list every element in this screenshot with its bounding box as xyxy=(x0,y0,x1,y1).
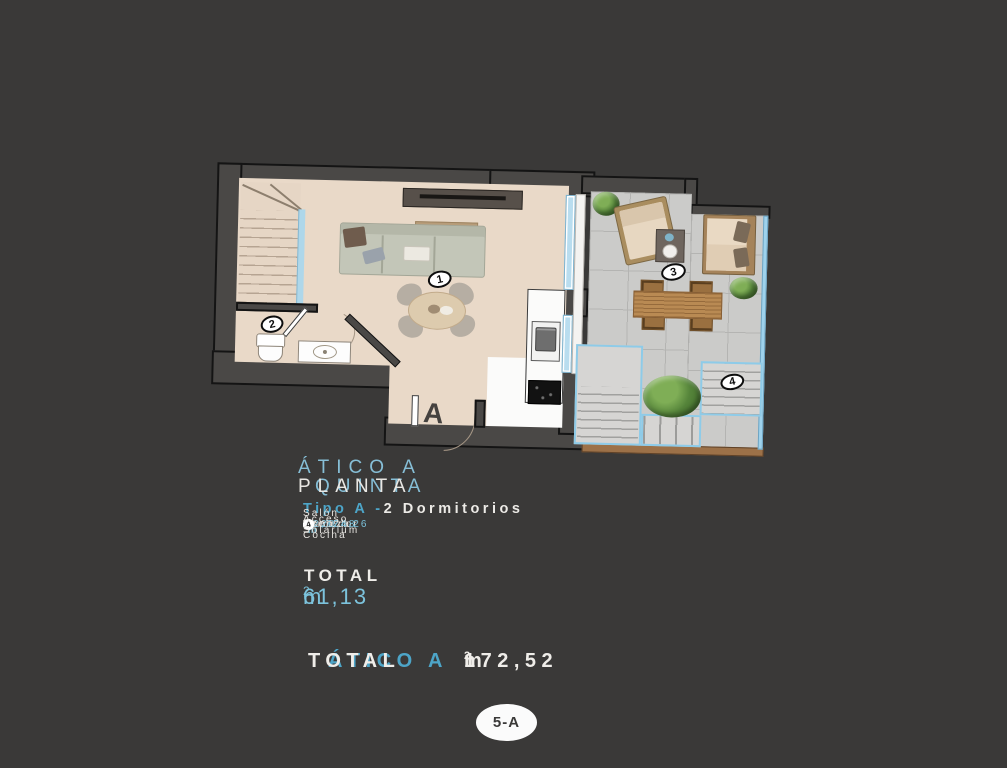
entrance-jamb xyxy=(474,400,486,428)
unit-badge: 5-A xyxy=(476,704,537,741)
total-label: TOTAL xyxy=(304,566,382,586)
legend-label: Acceso Solárium xyxy=(303,514,359,536)
table-deco xyxy=(428,304,440,313)
hob xyxy=(528,380,562,405)
table-deco2 xyxy=(440,306,453,315)
grand-total: TOTAL ÁTICO A 172,52 m2 xyxy=(308,650,464,673)
entrance-label: A xyxy=(422,397,445,430)
type-suffix: 2 Dormitorios xyxy=(384,501,524,517)
page-subtitle: PLANTAQUINTA xyxy=(298,476,427,498)
terrace-dining-table xyxy=(633,291,723,320)
floorplan-page: A xyxy=(0,0,1007,768)
sofa-pillow-white xyxy=(403,246,430,262)
sofa-pillow-brown xyxy=(343,226,367,248)
subtitle-planta: PLANTA xyxy=(298,476,413,498)
sink-tap xyxy=(323,350,327,354)
oven-door xyxy=(535,327,557,352)
solarium-stairs-left-steps xyxy=(577,386,639,442)
terrace-sofa-pillow2 xyxy=(733,247,750,268)
grand-prefix: TOTAL xyxy=(308,650,400,673)
solarium-steps-down xyxy=(641,414,702,447)
toilet-bowl xyxy=(258,345,283,362)
staircase-steps xyxy=(238,210,300,307)
